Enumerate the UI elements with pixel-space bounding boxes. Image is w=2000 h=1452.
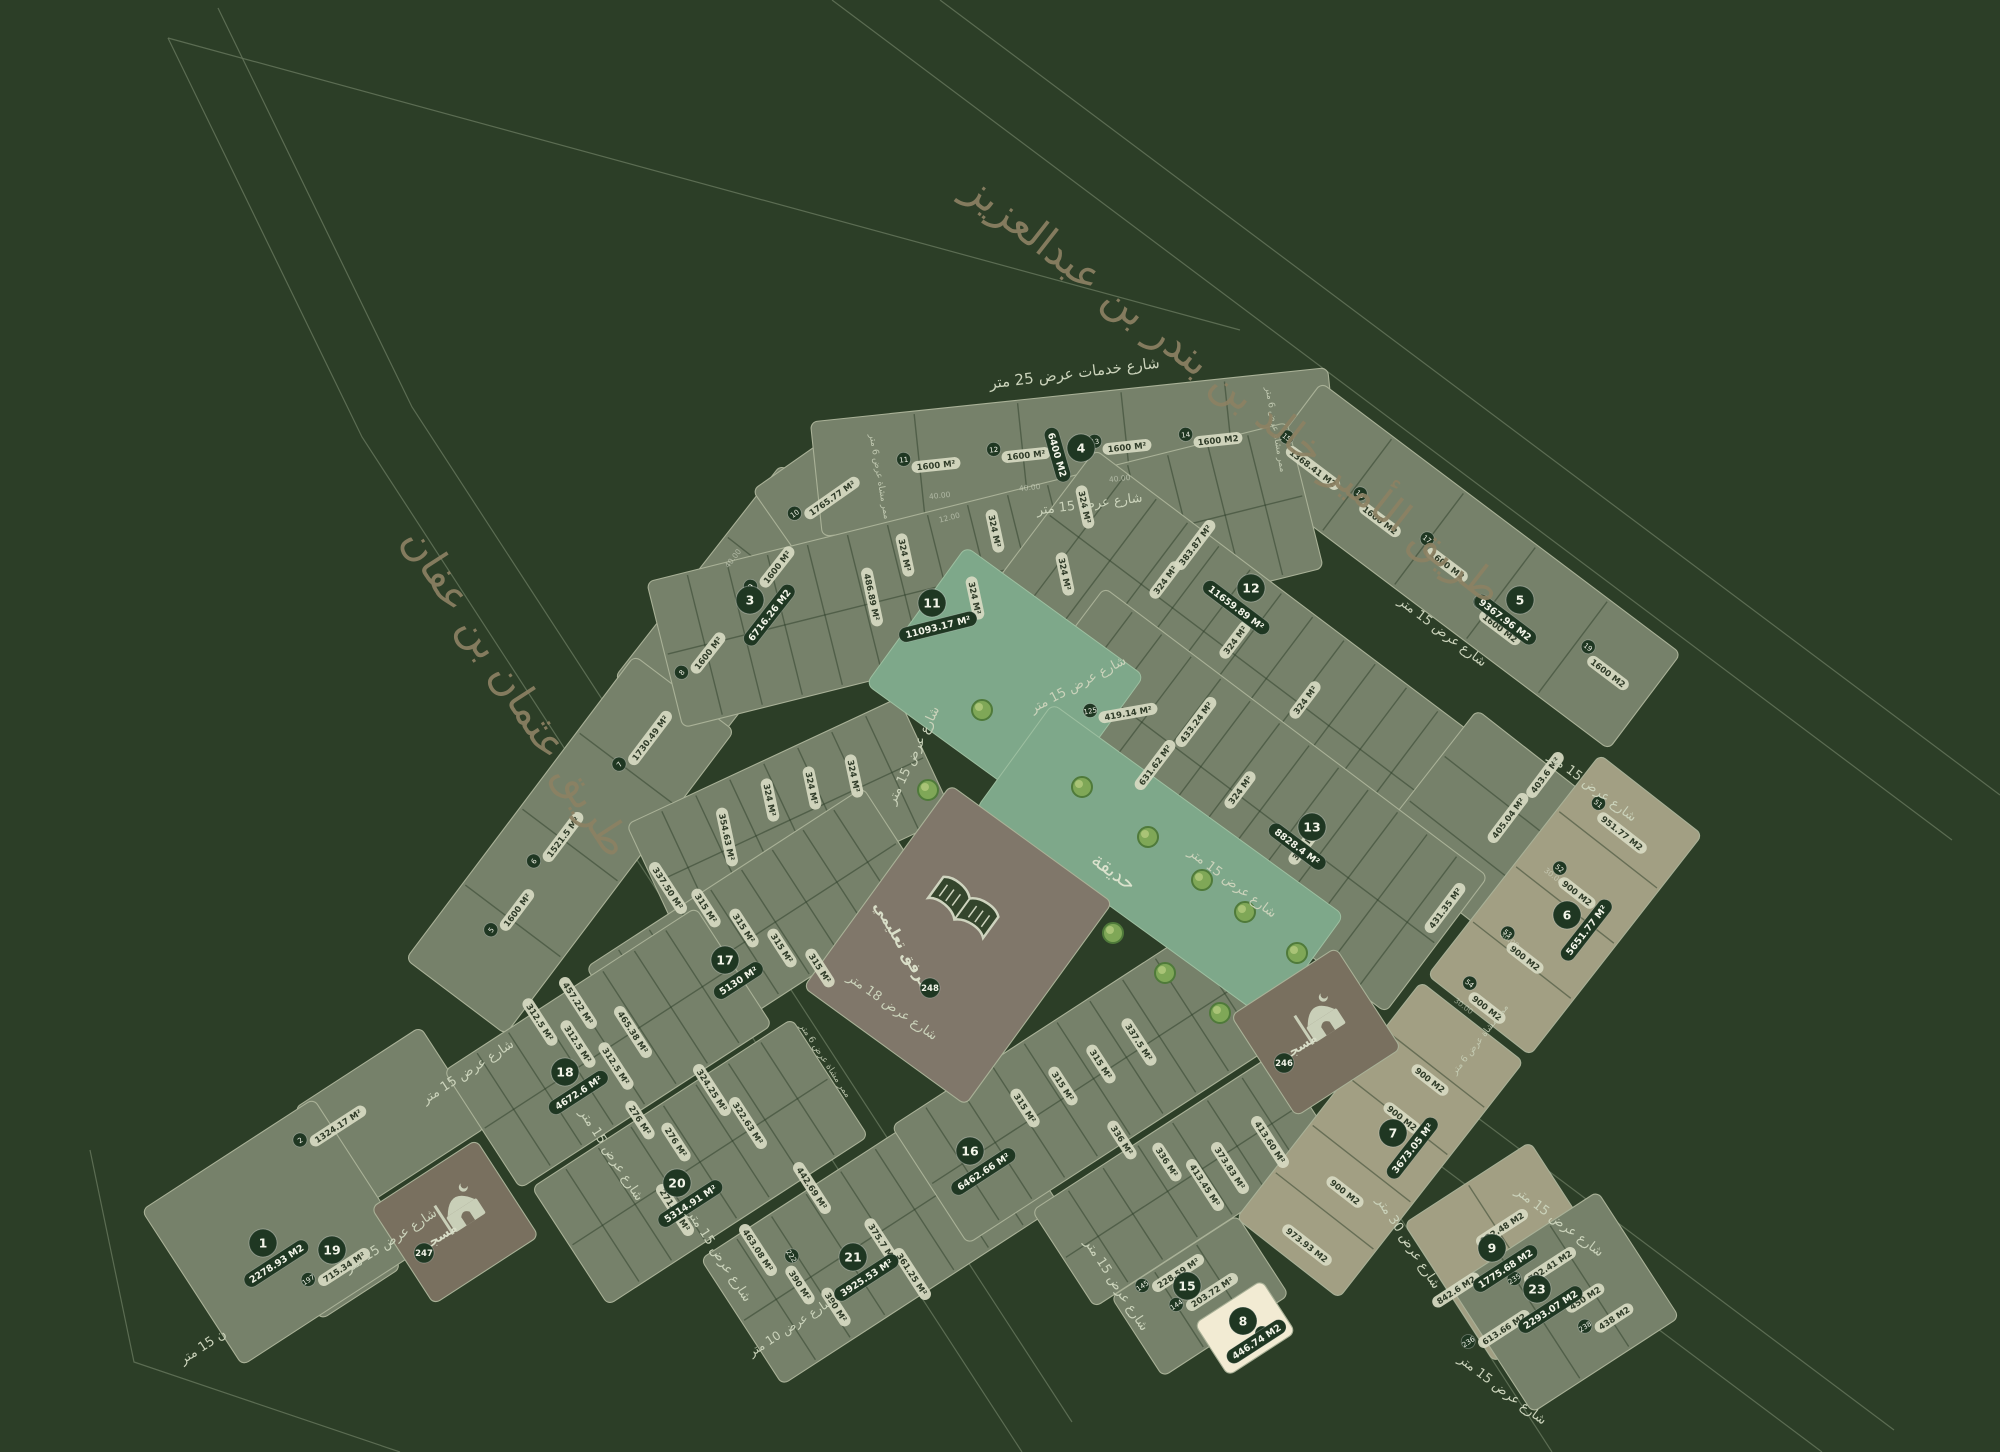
svg-text:247: 247 bbox=[415, 1249, 433, 1259]
svg-text:20: 20 bbox=[668, 1176, 686, 1191]
plan-svg: حديقةمرفق تعليمي248مسجد246مسجد2471600 M²… bbox=[0, 0, 2000, 1452]
svg-text:4: 4 bbox=[1077, 441, 1086, 456]
svg-text:7: 7 bbox=[1389, 1126, 1398, 1141]
svg-text:23: 23 bbox=[1528, 1282, 1545, 1297]
mosque-badge: 247 bbox=[414, 1243, 434, 1263]
svg-text:1: 1 bbox=[259, 1236, 268, 1251]
tree-icon bbox=[918, 780, 938, 800]
tree-icon bbox=[1210, 1003, 1230, 1023]
svg-text:11: 11 bbox=[899, 456, 909, 465]
svg-text:11: 11 bbox=[923, 596, 940, 611]
svg-text:19: 19 bbox=[323, 1243, 340, 1258]
master-plan-map: حديقةمرفق تعليمي248مسجد246مسجد2471600 M²… bbox=[0, 0, 2000, 1452]
svg-text:12: 12 bbox=[1242, 581, 1259, 596]
tree-icon bbox=[1103, 923, 1123, 943]
svg-text:13: 13 bbox=[1303, 820, 1320, 835]
tree-icon bbox=[1138, 827, 1158, 847]
svg-text:21: 21 bbox=[844, 1250, 861, 1265]
svg-text:248: 248 bbox=[921, 984, 939, 994]
svg-text:6: 6 bbox=[1563, 908, 1572, 923]
mosque-badge: 246 bbox=[1274, 1053, 1294, 1073]
tree-icon bbox=[972, 700, 992, 720]
svg-text:8: 8 bbox=[1239, 1314, 1248, 1329]
svg-text:12: 12 bbox=[989, 446, 999, 455]
block-badge-15: 15 bbox=[1173, 1272, 1201, 1300]
svg-text:14: 14 bbox=[1181, 431, 1191, 440]
block-badge-19: 19 bbox=[318, 1236, 346, 1264]
svg-text:246: 246 bbox=[1275, 1059, 1293, 1069]
school-badge: 248 bbox=[920, 978, 940, 998]
svg-text:17: 17 bbox=[716, 953, 733, 968]
svg-text:15: 15 bbox=[1178, 1279, 1195, 1294]
svg-text:16: 16 bbox=[961, 1144, 979, 1159]
tree-icon bbox=[1072, 777, 1092, 797]
tree-icon bbox=[1155, 963, 1175, 983]
svg-text:3: 3 bbox=[746, 593, 755, 608]
svg-text:9: 9 bbox=[1488, 1241, 1497, 1256]
svg-text:5: 5 bbox=[1516, 593, 1525, 608]
tree-icon bbox=[1287, 943, 1307, 963]
svg-text:18: 18 bbox=[556, 1065, 573, 1080]
